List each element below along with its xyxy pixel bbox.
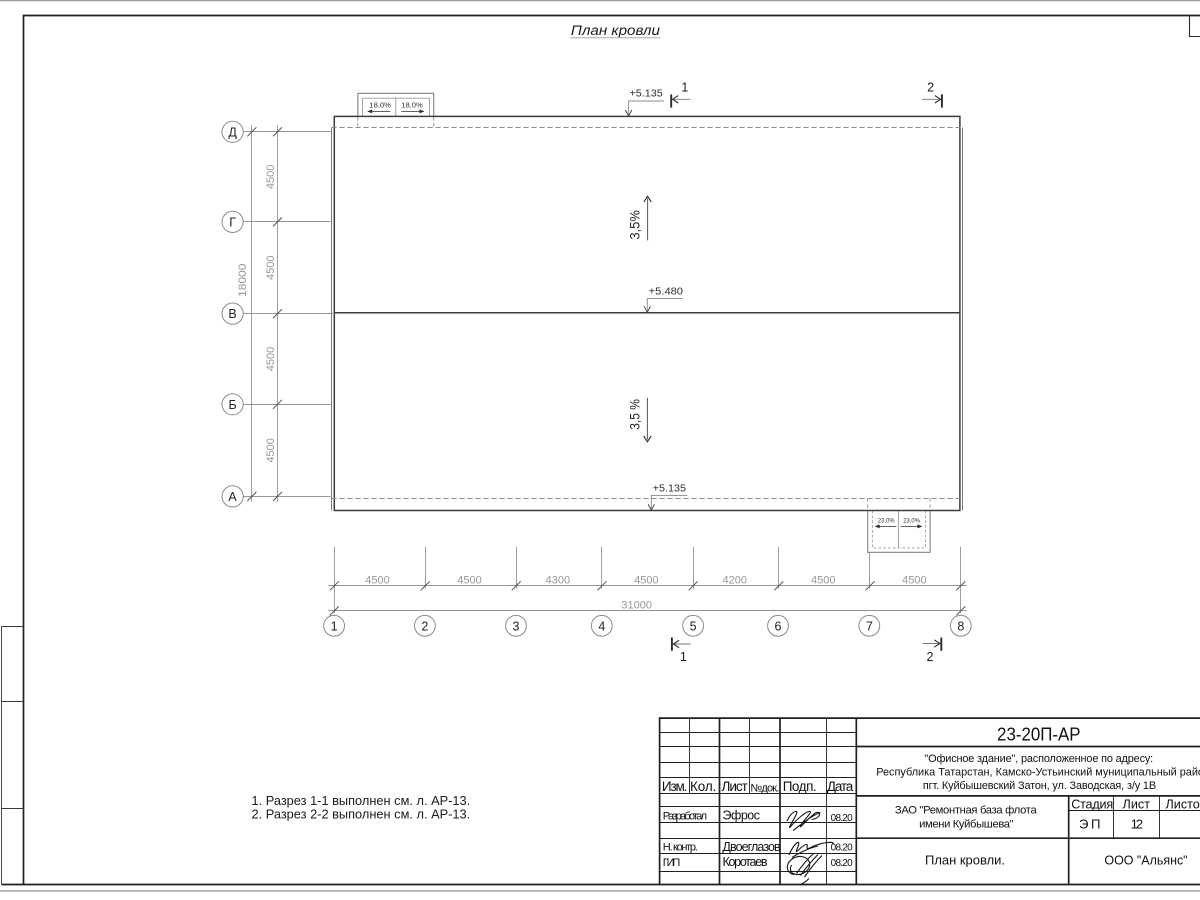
svg-text:12: 12 bbox=[1131, 817, 1144, 832]
svg-text:8: 8 bbox=[957, 619, 964, 633]
svg-text:23,0%: 23,0% bbox=[903, 517, 920, 524]
svg-text:4500: 4500 bbox=[265, 347, 277, 371]
svg-text:4200: 4200 bbox=[723, 575, 747, 587]
svg-text:Коротаев: Коротаев bbox=[723, 855, 768, 869]
svg-text:Подп.: Подп. bbox=[783, 779, 817, 794]
svg-text:План кровли: План кровли bbox=[571, 23, 661, 38]
svg-text:3,5%: 3,5% bbox=[626, 210, 642, 240]
svg-text:1: 1 bbox=[680, 650, 687, 664]
svg-text:Б: Б bbox=[228, 398, 236, 412]
svg-text:4500: 4500 bbox=[265, 256, 277, 280]
svg-text:ЗАО "Ремонтная база флота: ЗАО "Ремонтная база флота bbox=[895, 805, 1038, 817]
svg-text:2: 2 bbox=[927, 650, 934, 664]
svg-text:6: 6 bbox=[775, 619, 782, 633]
svg-text:18,0%: 18,0% bbox=[401, 102, 423, 109]
svg-text:4500: 4500 bbox=[902, 575, 926, 587]
svg-text:+5.135: +5.135 bbox=[630, 89, 663, 100]
svg-text:5: 5 bbox=[690, 619, 697, 633]
svg-text:ГИП: ГИП bbox=[663, 857, 681, 869]
svg-text:Н. контр.: Н. контр. bbox=[663, 842, 698, 854]
svg-text:Двоеглазов: Двоеглазов bbox=[722, 840, 781, 854]
svg-text:2. Разрез 2-2 выполнен см. л.: 2. Разрез 2-2 выполнен см. л. АР-13. bbox=[252, 806, 471, 821]
svg-text:+5.135: +5.135 bbox=[653, 483, 686, 494]
svg-text:1: 1 bbox=[681, 81, 688, 95]
svg-text:18,0%: 18,0% bbox=[369, 102, 391, 109]
svg-text:4500: 4500 bbox=[265, 165, 277, 189]
svg-text:В: В bbox=[228, 307, 236, 321]
svg-text:3: 3 bbox=[513, 619, 520, 633]
svg-text:3,5 %: 3,5 % bbox=[626, 399, 642, 430]
svg-text:Д: Д bbox=[228, 125, 237, 139]
svg-text:08.20: 08.20 bbox=[831, 813, 853, 824]
svg-text:23,0%: 23,0% bbox=[878, 517, 895, 524]
svg-text:4: 4 bbox=[598, 619, 605, 633]
svg-text:18000: 18000 bbox=[237, 264, 249, 297]
svg-text:Г: Г bbox=[229, 215, 236, 229]
svg-text:2: 2 bbox=[421, 619, 428, 633]
svg-text:1: 1 bbox=[331, 619, 338, 633]
svg-text:План кровли.: План кровли. bbox=[925, 852, 1005, 867]
svg-text:+5.480: +5.480 bbox=[649, 287, 684, 298]
svg-text:4300: 4300 bbox=[546, 575, 570, 587]
svg-text:пгт. Куйбышевский Затон, ул. З: пгт. Куйбышевский Затон, ул. Заводская, … bbox=[923, 780, 1156, 792]
svg-text:Кол.: Кол. bbox=[690, 779, 716, 794]
svg-text:23-20П-АР: 23-20П-АР bbox=[997, 724, 1081, 745]
svg-text:Эфрос: Эфрос bbox=[723, 808, 761, 822]
svg-text:ООО "Альянс": ООО "Альянс" bbox=[1104, 852, 1187, 867]
svg-text:А: А bbox=[228, 490, 237, 504]
svg-text:4500: 4500 bbox=[634, 575, 658, 587]
svg-text:4500: 4500 bbox=[365, 575, 389, 587]
svg-text:4500: 4500 bbox=[265, 438, 277, 462]
svg-text:7: 7 bbox=[866, 619, 873, 633]
svg-text:08.20: 08.20 bbox=[831, 843, 853, 854]
svg-text:Разработал: Разработал bbox=[663, 810, 707, 822]
svg-text:08.20: 08.20 bbox=[831, 858, 853, 869]
svg-text:Стадия: Стадия bbox=[1071, 797, 1113, 811]
svg-text:№док.: №док. bbox=[750, 782, 779, 794]
svg-text:Лист: Лист bbox=[1123, 797, 1151, 811]
svg-text:Дата: Дата bbox=[827, 779, 854, 794]
svg-text:Республика Татарстан, Камско-У: Республика Татарстан, Камско-Устьинский … bbox=[876, 767, 1200, 779]
svg-text:4500: 4500 bbox=[457, 575, 481, 587]
svg-text:2: 2 bbox=[927, 81, 934, 95]
svg-text:31000: 31000 bbox=[621, 600, 652, 612]
svg-text:"Офисное здание", расположенно: "Офисное здание", расположенное по адрес… bbox=[924, 753, 1153, 765]
svg-text:имени Куйбышева": имени Куйбышева" bbox=[919, 818, 1014, 830]
svg-text:Листов: Листов bbox=[1166, 797, 1200, 811]
svg-text:4500: 4500 bbox=[811, 575, 835, 587]
svg-text:Лист: Лист bbox=[722, 779, 748, 794]
svg-text:Изм.: Изм. bbox=[662, 779, 688, 794]
